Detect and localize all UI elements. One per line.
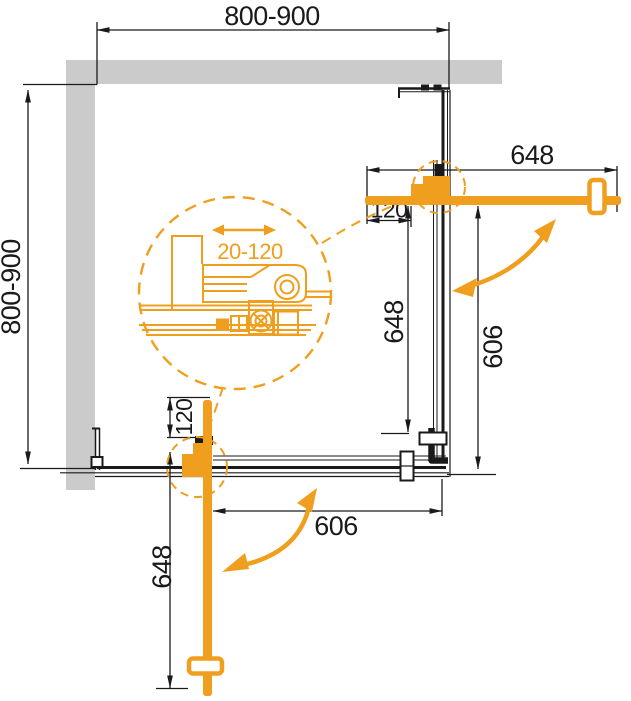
door-bottom-panel xyxy=(203,400,212,696)
wall-bracket-tab xyxy=(421,85,429,91)
wall-left xyxy=(66,60,95,490)
swing-arrow-right xyxy=(452,219,556,297)
door-right xyxy=(365,176,621,297)
frame-bottom-profile xyxy=(60,428,449,481)
dim-label-bottom-offset: 120 xyxy=(171,399,197,436)
detail-adjustment-label: 20-120 xyxy=(217,239,283,264)
dim-label-top-width: 800-900 xyxy=(224,1,320,31)
wall-top xyxy=(95,60,502,84)
guide-block xyxy=(216,319,229,331)
glass-clamp-right xyxy=(420,433,447,445)
detail-bubble: 20-120 xyxy=(139,161,465,497)
door-right-handle xyxy=(590,180,605,213)
dim-label-bottom-door: 648 xyxy=(147,545,177,589)
dim-label-right-fixed: 648 xyxy=(379,300,409,344)
swing-arrow-bottom xyxy=(222,488,317,572)
wall-bracket-tab xyxy=(434,85,442,91)
door-right-panel xyxy=(365,196,621,205)
detail-circle xyxy=(139,197,331,389)
door-bottom xyxy=(182,400,317,696)
dim-label-bottom-opening: 606 xyxy=(314,511,358,541)
plan-view-svg: 800-900 800-900 648 120 648 606 120 648 … xyxy=(0,0,631,701)
frame-right-profile xyxy=(398,85,450,478)
pivot-block-right xyxy=(423,176,450,196)
wall-profile-clamp xyxy=(92,457,103,467)
door-bottom-handle xyxy=(189,659,222,674)
dim-label-left-depth: 800-900 xyxy=(0,239,26,335)
roller-wheel-icon xyxy=(275,275,299,299)
dim-label-right-door: 648 xyxy=(510,140,554,170)
adjustment-arrow-icon xyxy=(212,225,276,236)
dim-label-right-opening: 606 xyxy=(478,325,508,369)
shower-enclosure-plan-drawing: 800-900 800-900 648 120 648 606 120 648 … xyxy=(0,0,631,701)
